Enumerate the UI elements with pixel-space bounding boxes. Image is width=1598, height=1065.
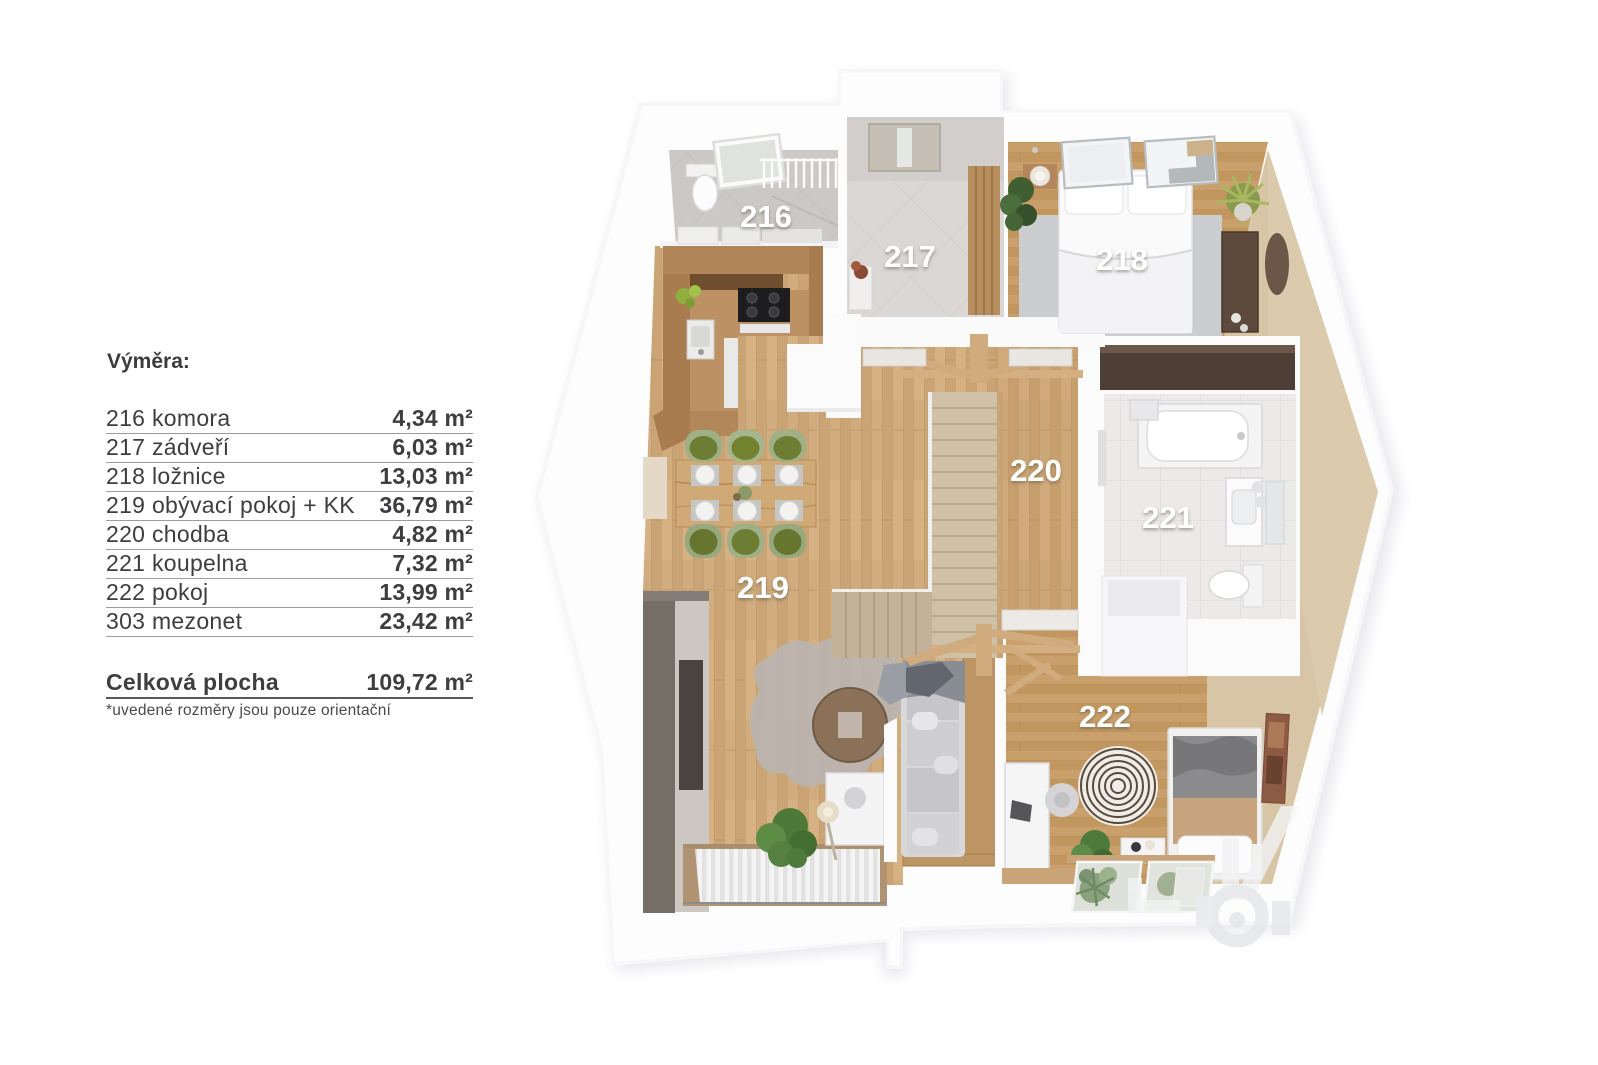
svg-text:216: 216 — [740, 199, 792, 234]
svg-text:220: 220 — [1010, 453, 1062, 488]
svg-text:222: 222 — [1079, 699, 1131, 734]
svg-text:217: 217 — [884, 239, 936, 274]
svg-text:221: 221 — [1142, 500, 1194, 535]
svg-text:218: 218 — [1096, 242, 1148, 277]
svg-text:219: 219 — [737, 570, 789, 605]
